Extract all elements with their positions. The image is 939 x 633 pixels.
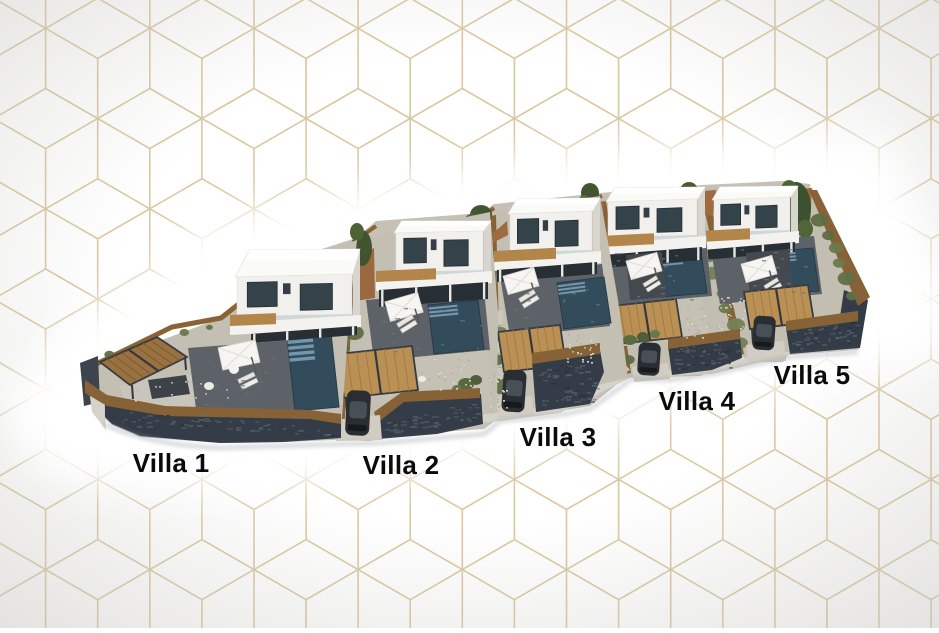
svg-text:Villa 1: Villa 1	[133, 448, 210, 478]
svg-text:Villa 4: Villa 4	[659, 386, 736, 416]
svg-text:Villa 5: Villa 5	[774, 360, 851, 390]
svg-text:Villa 2: Villa 2	[363, 450, 440, 480]
svg-text:Villa 3: Villa 3	[520, 422, 597, 452]
